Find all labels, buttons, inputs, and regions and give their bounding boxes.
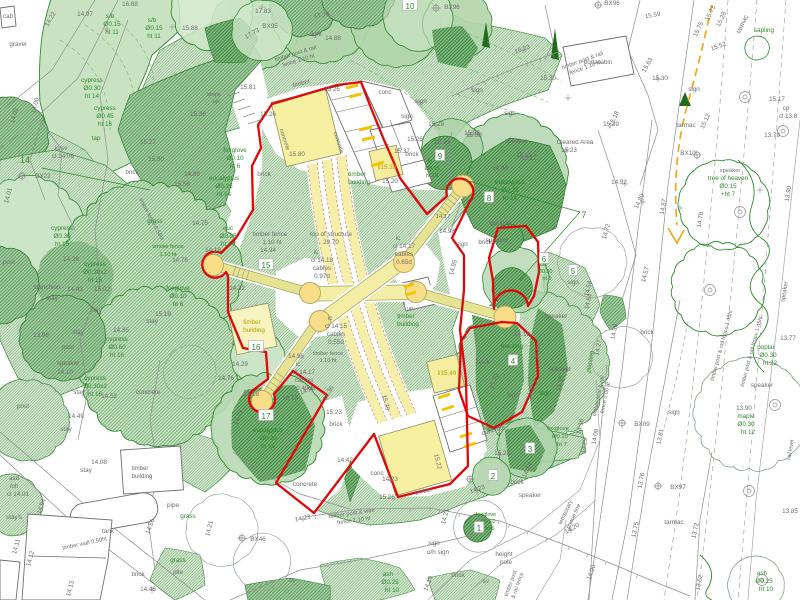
svg-text:ht 11: ht 11 — [105, 29, 119, 36]
svg-text:14.19: 14.19 — [205, 247, 221, 254]
svg-text:Ø0.25: Ø0.25 — [501, 187, 519, 194]
svg-text:speaker: speaker — [549, 366, 571, 373]
svg-text:stay: stay — [60, 426, 72, 433]
svg-text:9: 9 — [438, 152, 443, 161]
svg-text:cables: cables — [327, 331, 345, 338]
svg-text:14.35: 14.35 — [113, 327, 129, 334]
svg-text:Ø0.30x2: Ø0.30x2 — [83, 383, 107, 390]
svg-text:brick: brick — [329, 421, 343, 428]
svg-text:sign: sign — [507, 392, 519, 399]
svg-text:euc: euc — [223, 225, 233, 232]
svg-text:ic: ic — [328, 315, 333, 322]
svg-text:15.23: 15.23 — [494, 450, 510, 457]
svg-text:14.17: 14.17 — [436, 214, 451, 220]
svg-text:16.68: 16.68 — [122, 1, 138, 8]
svg-text:BX96: BX96 — [604, 0, 620, 7]
svg-text:Ø0.30x2: Ø0.30x2 — [83, 269, 107, 276]
svg-text:cypress: cypress — [106, 336, 128, 343]
svg-text:14.92: 14.92 — [611, 179, 627, 186]
svg-text:3: 3 — [528, 445, 533, 454]
svg-text:13.85: 13.85 — [782, 508, 798, 515]
svg-text:13.90: 13.90 — [736, 405, 752, 412]
svg-text:29.70: 29.70 — [323, 239, 339, 246]
svg-text:17.83: 17.83 — [255, 8, 271, 15]
svg-text:speaker: speaker — [751, 382, 773, 389]
svg-text:cl 14.17: cl 14.17 — [293, 369, 316, 376]
svg-text:ht 11: ht 11 — [147, 33, 161, 40]
svg-text:13.79: 13.79 — [764, 132, 780, 139]
svg-text:cl 14.06: cl 14.06 — [52, 153, 75, 160]
svg-text:fg: fg — [428, 159, 433, 165]
svg-text:cl 14.17: cl 14.17 — [393, 243, 416, 250]
svg-text:ht 10: ht 10 — [385, 587, 400, 594]
svg-text:14.89: 14.89 — [184, 171, 200, 178]
svg-text:up: up — [407, 306, 413, 312]
svg-text:Ø0.15: Ø0.15 — [145, 25, 163, 32]
svg-text:s/b: s/b — [106, 13, 115, 20]
svg-text:sign: sign — [471, 87, 483, 94]
svg-text:ash: ash — [383, 571, 394, 578]
svg-text:asd: asd — [9, 475, 20, 482]
svg-text:14.96: 14.96 — [288, 353, 304, 360]
svg-text:stay: stay — [73, 389, 85, 396]
svg-text:sign: sign — [567, 279, 579, 286]
svg-text:cl 14.01: cl 14.01 — [7, 491, 30, 498]
svg-text:15: 15 — [262, 261, 271, 270]
svg-text:BX46: BX46 — [250, 536, 266, 543]
svg-text:sign: sign — [428, 540, 440, 547]
svg-text:ht 7: ht 7 — [557, 442, 567, 448]
svg-text:stanchion: stanchion — [34, 284, 61, 291]
svg-text:stay: stay — [146, 318, 158, 325]
svg-text:stay: stay — [90, 307, 102, 314]
svg-text:speaker: speaker — [545, 313, 567, 320]
svg-text:sign: sign — [415, 98, 427, 105]
svg-text:15.17: 15.17 — [521, 155, 537, 162]
svg-text:15.26: 15.26 — [324, 86, 340, 93]
svg-text:cypress: cypress — [94, 105, 116, 112]
svg-text:15.88: 15.88 — [466, 132, 482, 139]
svg-text:sapling: sapling — [754, 27, 774, 34]
svg-text:timber: timber — [397, 313, 415, 320]
svg-text:14.97: 14.97 — [77, 11, 93, 18]
svg-text:speaker: speaker — [489, 220, 511, 227]
svg-text:BX22: BX22 — [35, 173, 51, 180]
svg-text:timber fence: timber fence — [313, 351, 343, 357]
svg-text:cl 14.15: cl 14.15 — [325, 323, 348, 330]
svg-text:16: 16 — [252, 343, 261, 352]
svg-text:tree of heaven: tree of heaven — [708, 175, 749, 182]
svg-text:Ø0.30: Ø0.30 — [83, 85, 101, 92]
svg-text:pile: pile — [173, 569, 183, 576]
svg-text:sv: sv — [483, 578, 490, 585]
svg-text:14.94: 14.94 — [260, 247, 276, 254]
svg-text:BX95: BX95 — [262, 23, 278, 30]
svg-text:Ø0.45: Ø0.45 — [96, 113, 114, 120]
svg-text:planting: planting — [501, 343, 524, 350]
svg-text:building: building — [348, 179, 370, 186]
svg-text:BX97: BX97 — [670, 484, 686, 491]
svg-text:concrete: concrete — [136, 389, 161, 396]
svg-text:14.75: 14.75 — [192, 220, 208, 227]
svg-text:post: post — [17, 403, 29, 410]
svg-text:speaker: speaker — [486, 237, 508, 244]
svg-text:15.58: 15.58 — [174, 181, 190, 188]
svg-text:14.98: 14.98 — [439, 228, 455, 235]
svg-text:0.97d: 0.97d — [314, 273, 330, 280]
svg-text:14.18: 14.18 — [243, 391, 259, 398]
svg-text:ic/sv: ic/sv — [55, 145, 68, 152]
svg-text:speaker: speaker — [720, 168, 741, 174]
svg-text:sv: sv — [289, 577, 296, 584]
svg-text:14.76: 14.76 — [218, 375, 234, 382]
svg-text:ht 22: ht 22 — [763, 360, 778, 367]
svg-text:15.02: 15.02 — [94, 286, 110, 293]
svg-text:Ø0.25: Ø0.25 — [215, 183, 233, 190]
svg-text:Ø0.10: Ø0.10 — [552, 434, 568, 440]
svg-text:s/b: s/b — [148, 17, 157, 24]
svg-text:13.98: 13.98 — [33, 332, 49, 339]
svg-text:ht 14: ht 14 — [217, 191, 232, 198]
svg-text:Ø0.30: Ø0.30 — [759, 352, 777, 359]
svg-text:15.81: 15.81 — [240, 84, 256, 91]
svg-text:pipe: pipe — [167, 502, 179, 509]
svg-text:cl 14.18: cl 14.18 — [311, 257, 334, 264]
svg-text:BX09: BX09 — [634, 421, 650, 428]
svg-text:6: 6 — [542, 255, 547, 264]
svg-text:foxglove: foxglove — [547, 426, 569, 432]
svg-text:stay: stay — [72, 329, 84, 336]
svg-text:15.30: 15.30 — [148, 156, 164, 163]
svg-text:Ø0.60: Ø0.60 — [108, 344, 126, 351]
svg-text:17: 17 — [262, 412, 271, 421]
svg-text:Ø0.30: Ø0.30 — [259, 435, 277, 442]
svg-text:eucalyptus: eucalyptus — [253, 427, 283, 434]
svg-text:Ø0.15: Ø0.15 — [425, 166, 440, 172]
svg-text:sign: sign — [539, 390, 551, 397]
svg-text:1: 1 — [477, 524, 482, 533]
svg-text:15.30: 15.30 — [540, 75, 556, 82]
svg-text:light: light — [310, 31, 322, 38]
svg-text:speaker: speaker — [505, 138, 527, 145]
svg-text:Ø0.25: Ø0.25 — [381, 579, 399, 586]
svg-text:ll15.39: ll15.39 — [378, 164, 397, 171]
svg-text:Ø0.25: Ø0.25 — [219, 233, 237, 240]
svg-text:BX10: BX10 — [680, 150, 696, 157]
svg-text:ht 14: ht 14 — [85, 93, 100, 100]
svg-text:timber: timber — [348, 171, 366, 178]
svg-text:foxglove: foxglove — [476, 512, 497, 518]
svg-text:stay: stay — [80, 467, 92, 474]
svg-text:ash: ash — [757, 570, 768, 577]
svg-text:15.23: 15.23 — [326, 409, 342, 416]
svg-text:14.42: 14.42 — [337, 457, 353, 464]
svg-text:14.08: 14.08 — [91, 459, 107, 466]
svg-text:building: building — [397, 321, 419, 328]
svg-text:steps: steps — [207, 92, 221, 98]
svg-text:cypress: cypress — [84, 261, 106, 268]
svg-text:14.49: 14.49 — [68, 413, 84, 420]
svg-text:14.18: 14.18 — [514, 331, 530, 338]
svg-text:0.65d: 0.65d — [396, 259, 412, 266]
svg-text:14.29: 14.29 — [232, 361, 248, 368]
svg-text:sign: sign — [504, 110, 516, 117]
svg-text:cypress: cypress — [84, 375, 106, 382]
svg-text:timber: timber — [132, 466, 149, 472]
svg-text:brick: brick — [131, 571, 145, 578]
svg-text:1.10 ht: 1.10 ht — [262, 239, 282, 246]
svg-text:7: 7 — [581, 210, 586, 220]
svg-text:eucalyptus: eucalyptus — [209, 175, 239, 182]
svg-text:15.23: 15.23 — [434, 139, 450, 146]
svg-text:ht 12: ht 12 — [741, 429, 756, 436]
svg-text:ic: ic — [396, 235, 401, 242]
svg-text:10: 10 — [406, 2, 415, 11]
svg-text:15.88: 15.88 — [182, 25, 198, 32]
svg-text:ht 6: ht 6 — [485, 526, 494, 532]
svg-text:Ø0.20: Ø0.20 — [538, 269, 553, 275]
svg-text:brick: brick — [640, 329, 654, 336]
svg-text:Ø0.25: Ø0.25 — [755, 578, 773, 585]
svg-text:sign: sign — [688, 86, 700, 93]
svg-text:sign: sign — [668, 409, 680, 416]
svg-text:foxglove: foxglove — [166, 285, 190, 292]
svg-text:5: 5 — [571, 267, 576, 276]
svg-text:15.26: 15.26 — [260, 111, 276, 118]
svg-text:14.76: 14.76 — [172, 257, 188, 264]
svg-text:14.52: 14.52 — [101, 393, 117, 400]
svg-text:height: height — [495, 551, 512, 558]
svg-text:eucalyptus: eucalyptus — [495, 179, 525, 186]
svg-text:Ø0.10: Ø0.10 — [226, 155, 244, 162]
svg-text:brick: brick — [510, 479, 524, 486]
svg-text:15.36: 15.36 — [190, 111, 206, 118]
svg-text:15.80: 15.80 — [289, 151, 305, 158]
svg-text:timber fence: timber fence — [253, 231, 288, 238]
svg-text:15.29: 15.29 — [428, 121, 444, 128]
svg-text:15.30: 15.30 — [652, 75, 668, 82]
svg-text:0.55d: 0.55d — [328, 339, 344, 346]
svg-text:1.10 ht: 1.10 ht — [320, 358, 337, 364]
svg-text:stay: stay — [46, 295, 58, 302]
svg-text:stay's: stay's — [6, 514, 22, 521]
svg-text:ht 14: ht 14 — [503, 195, 518, 202]
svg-text:Cleared Area: Cleared Area — [557, 139, 594, 146]
svg-text:Ø0.10: Ø0.10 — [169, 293, 187, 300]
svg-text:speaker: speaker — [519, 492, 541, 499]
svg-text:15.23: 15.23 — [561, 147, 577, 154]
svg-text:top of structure: top of structure — [310, 231, 352, 238]
svg-text:pole: pole — [500, 559, 512, 566]
svg-text:brick: brick — [476, 359, 490, 366]
svg-text:gravel: gravel — [9, 41, 26, 48]
svg-text:14.22: 14.22 — [229, 285, 245, 292]
svg-text:conc: conc — [378, 89, 391, 96]
svg-text:tank: tank — [102, 528, 115, 535]
svg-text:ht 16: ht 16 — [110, 352, 125, 359]
svg-text:14.46: 14.46 — [140, 586, 156, 593]
svg-text:tarmac: tarmac — [664, 519, 683, 526]
svg-text:14.23: 14.23 — [382, 476, 398, 483]
svg-text:14.26: 14.26 — [63, 256, 79, 263]
svg-text:14.88: 14.88 — [325, 35, 341, 42]
svg-text:14.43: 14.43 — [67, 286, 83, 293]
svg-text:ht 15: ht 15 — [55, 241, 70, 248]
svg-text:cp: cp — [783, 105, 790, 112]
svg-text:14.79: 14.79 — [282, 395, 298, 402]
svg-text:ht 10: ht 10 — [759, 586, 774, 593]
svg-text:timber: timber — [243, 319, 261, 326]
svg-text:poplar: poplar — [757, 344, 775, 351]
svg-text:14.98: 14.98 — [492, 165, 508, 172]
svg-text:4: 4 — [511, 357, 516, 366]
svg-text:ic: ic — [296, 361, 301, 368]
svg-text:ht 6: ht 6 — [230, 163, 241, 170]
svg-text:Ø0.15: Ø0.15 — [719, 183, 737, 190]
svg-text:mh: mh — [10, 483, 19, 490]
svg-text:ht 16: ht 16 — [98, 121, 113, 128]
svg-text:cables: cables — [313, 265, 331, 272]
svg-text:ht 10: ht 10 — [426, 173, 438, 179]
svg-text:+ht 7: +ht 7 — [721, 191, 736, 198]
svg-text:cl 13.8: cl 13.8 — [779, 113, 798, 120]
svg-text:up: up — [213, 99, 219, 105]
svg-text:14.10: 14.10 — [57, 369, 73, 376]
svg-text:BX96: BX96 — [444, 4, 460, 11]
svg-text:Ø0.15: Ø0.15 — [103, 21, 121, 28]
svg-text:brick: brick — [405, 151, 419, 158]
svg-text:15.20: 15.20 — [382, 178, 398, 185]
svg-text:cables: cables — [395, 251, 413, 258]
svg-text:cab: cab — [3, 13, 14, 20]
svg-text:grass: grass — [170, 557, 185, 564]
svg-text:sign: sign — [401, 113, 413, 120]
svg-text:sign: sign — [456, 241, 468, 248]
svg-text:concrete: concrete — [293, 481, 318, 488]
svg-text:ll15.40: ll15.40 — [438, 370, 457, 377]
svg-text:2: 2 — [491, 472, 496, 481]
svg-text:portacabin: portacabin — [584, 60, 612, 66]
svg-text:maple: maple — [737, 413, 755, 420]
svg-text:1.10 ht: 1.10 ht — [160, 252, 177, 258]
svg-text:foxglove: foxglove — [223, 147, 247, 154]
svg-text:15.19: 15.19 — [155, 311, 171, 318]
svg-text:post: post — [62, 344, 74, 351]
svg-text:brick: brick — [257, 171, 271, 178]
svg-text:14: 14 — [20, 155, 30, 165]
svg-text:o/h sign: o/h sign — [427, 549, 450, 556]
svg-text:15.27: 15.27 — [140, 139, 156, 146]
svg-text:cypress: cypress — [81, 77, 103, 84]
svg-text:15.26: 15.26 — [407, 136, 423, 143]
svg-text:Ø0.30: Ø0.30 — [53, 233, 71, 240]
svg-text:ht 6: ht 6 — [173, 301, 184, 308]
svg-text:ic: ic — [314, 249, 319, 256]
svg-text:brick: brick — [125, 169, 139, 176]
svg-text:cypress: cypress — [51, 225, 73, 232]
svg-text:13.77: 13.77 — [780, 335, 796, 342]
svg-text:8: 8 — [487, 194, 492, 203]
svg-text:building: building — [243, 327, 265, 334]
svg-text:ht 15: ht 15 — [261, 443, 276, 450]
svg-text:Ø0.30: Ø0.30 — [737, 421, 755, 428]
svg-text:ht 14: ht 14 — [221, 241, 236, 248]
svg-text:post: post — [3, 259, 15, 266]
svg-text:15.26: 15.26 — [379, 494, 395, 501]
svg-text:ht 15: ht 15 — [88, 277, 103, 284]
svg-text:15.17: 15.17 — [769, 96, 785, 103]
svg-text:brick: brick — [451, 572, 465, 579]
svg-text:tap: tap — [92, 135, 101, 142]
svg-text:grass: grass — [180, 513, 195, 520]
svg-text:ht 9: ht 9 — [542, 276, 551, 282]
svg-text:cables: cables — [295, 377, 313, 384]
svg-text:speaker: speaker — [57, 360, 79, 367]
svg-text:tarmac: tarmac — [676, 122, 695, 129]
svg-text:building: building — [132, 474, 153, 480]
svg-text:smoke fence: smoke fence — [152, 244, 183, 250]
